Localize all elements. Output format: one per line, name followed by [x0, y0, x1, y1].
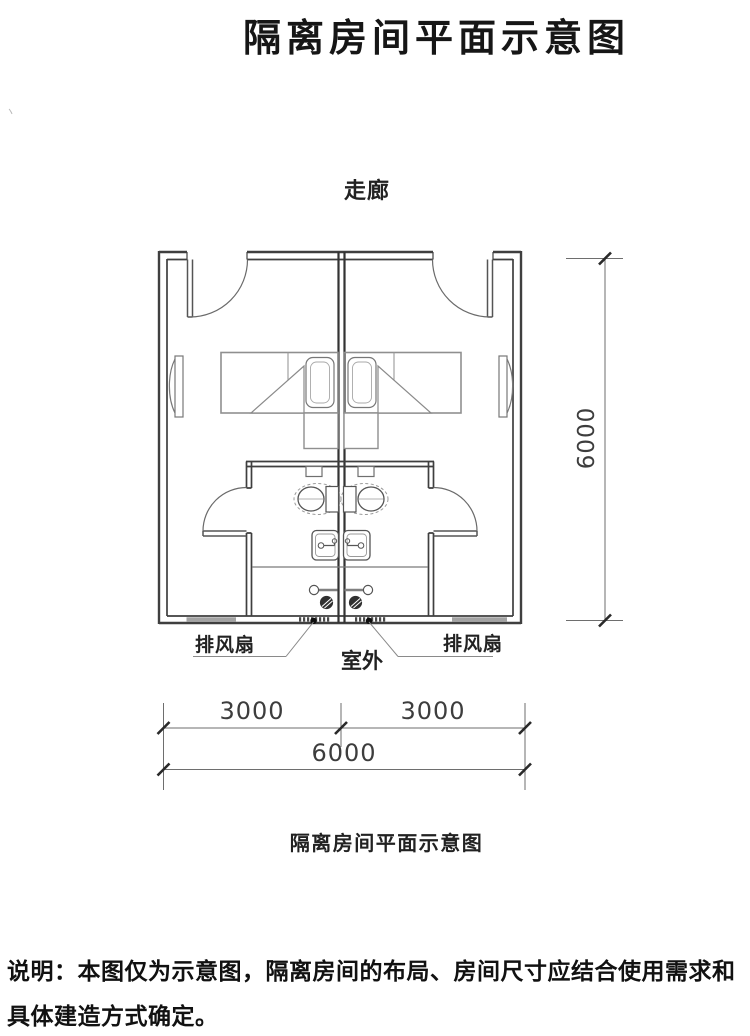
sink-left	[312, 531, 339, 561]
dimension-room-width-left: 3000	[212, 697, 292, 725]
dimension-total-width: 6000	[301, 739, 387, 767]
windows	[187, 617, 508, 621]
floor-drain-left	[320, 596, 333, 609]
plan-caption: 隔离房间平面示意图	[286, 827, 487, 856]
bathroom-walls	[246, 462, 434, 617]
dimension-room-width-right: 3000	[393, 697, 473, 725]
exhaust-fan-label-right: 排风扇	[443, 629, 503, 656]
toilet-left	[294, 484, 341, 515]
shower-right	[345, 585, 373, 594]
document-page: 隔离房间平面示意图 丶 走廊 排风扇 排风扇 室外 3000 3000 6000…	[0, 0, 750, 1036]
exterior-walls	[159, 251, 521, 624]
exhaust-fan-label-left: 排风扇	[195, 630, 255, 657]
floor-plan-drawing	[0, 0, 750, 1036]
entry-door-right	[433, 260, 493, 318]
note-line-2: 具体建造方式确定。	[7, 997, 219, 1031]
bed-right	[344, 353, 461, 414]
bed-left	[221, 353, 338, 414]
sink-right	[344, 531, 371, 561]
corridor-label: 走廊	[344, 173, 390, 205]
note-line-1: 说明：本图仅为示意图，隔离房间的布局、房间尺寸应结合使用需求和	[7, 952, 736, 986]
toilet-right	[341, 484, 388, 515]
floor-drain-right	[349, 596, 362, 609]
nightstands	[304, 413, 378, 449]
bathroom-door-right	[434, 488, 478, 537]
entry-door-left	[188, 260, 248, 318]
shower-left	[309, 585, 337, 594]
outdoor-label: 室外	[341, 645, 383, 675]
page-title: 隔离房间平面示意图	[243, 7, 630, 62]
wall-heater-left	[169, 356, 183, 417]
bathroom-vents	[306, 467, 374, 477]
bathroom-door-left	[203, 488, 247, 537]
dimension-total-depth: 6000	[574, 406, 602, 470]
wall-heater-right	[499, 356, 513, 417]
